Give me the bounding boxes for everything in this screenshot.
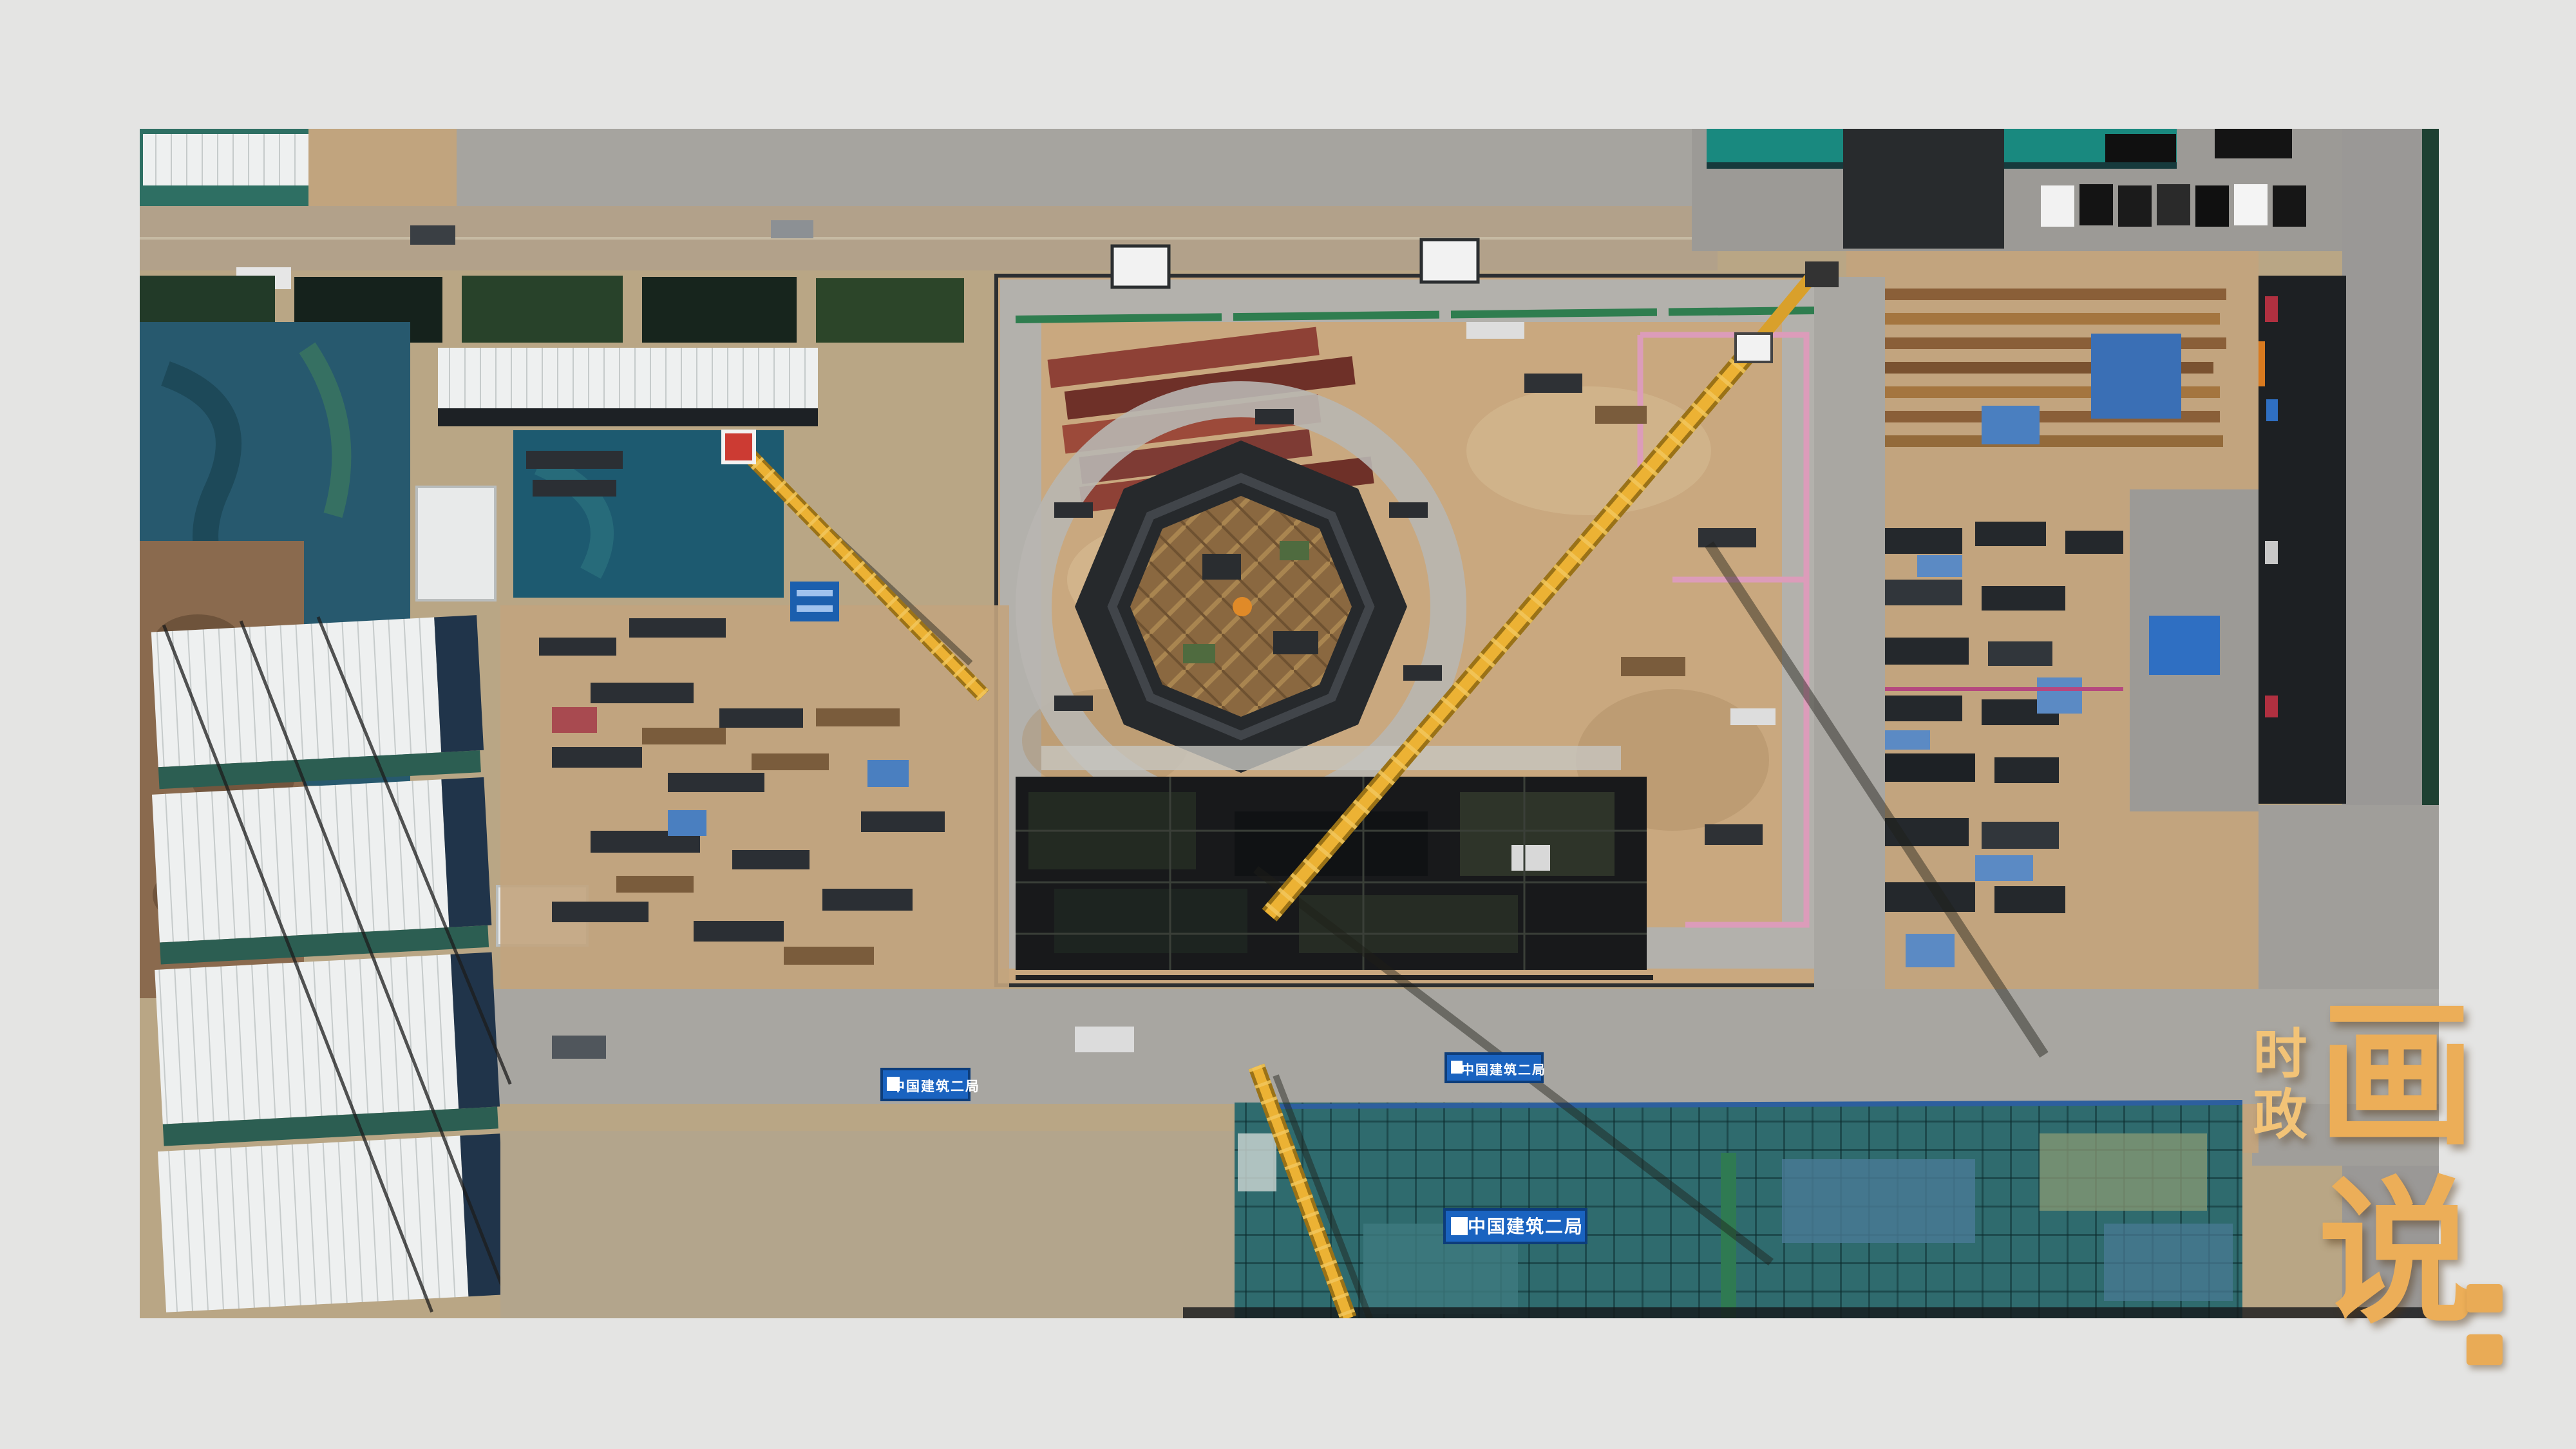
blue-machine xyxy=(2149,616,2220,675)
brand-colon-dot xyxy=(2467,1334,2503,1365)
blue-sign xyxy=(790,582,839,621)
brand-colon-dot xyxy=(2467,1284,2503,1312)
banner-sign-1: 中国建筑二局 xyxy=(882,1069,980,1100)
aerial-photo-scene: 中国建筑二局 中国建筑二局 中国建筑二局 xyxy=(140,129,2439,1318)
octagon-core xyxy=(1075,440,1407,773)
east-lane xyxy=(1814,277,1885,1101)
dark-speckled-building xyxy=(2259,276,2346,804)
page: 中国建筑二局 中国建筑二局 中国建筑二局 时政 画说 xyxy=(0,0,2576,1449)
bottom-road xyxy=(294,989,2439,1104)
warehouse-roof-row xyxy=(438,348,818,410)
banner-sign-2: 中国建筑二局 xyxy=(1446,1054,1546,1082)
banner-text: 中国建筑二局 xyxy=(891,1079,980,1094)
aerial-photo: 中国建筑二局 中国建筑二局 中国建筑二局 xyxy=(140,129,2439,1318)
dark-building xyxy=(1843,129,2004,249)
south-formwork xyxy=(1016,777,1647,970)
blue-tarp xyxy=(2091,334,2181,419)
banner-sign-3: 中国建筑二局 xyxy=(1444,1209,1586,1243)
brand-title-vertical: 画说 xyxy=(2304,992,2461,1347)
banner-text: 中国建筑二局 xyxy=(1468,1216,1584,1237)
construction-pit xyxy=(996,240,1827,985)
banner-text: 中国建筑二局 xyxy=(1461,1062,1546,1077)
